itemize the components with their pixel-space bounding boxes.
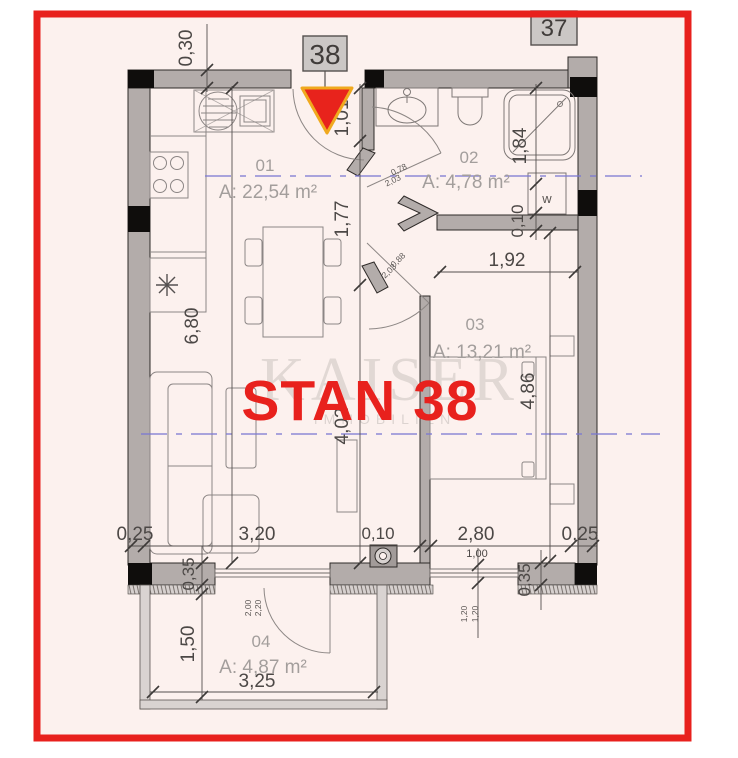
unit-number: 38 xyxy=(309,39,340,70)
dim-bedroom-width: 2,80 xyxy=(458,524,495,545)
dim-bottom-left-wall: 0,25 xyxy=(117,524,154,545)
dim-bottom-mid-wall: 0,10 xyxy=(361,524,394,543)
dim-balcony-parapet: 0,35 xyxy=(179,557,198,590)
fridge-star-icon xyxy=(156,274,178,296)
dim-bedroom-side: 4,86 xyxy=(518,373,539,410)
dim-balcony-door-a: 2,00 xyxy=(243,599,253,616)
room-04-number: 04 xyxy=(252,632,271,651)
dim-shower: 1,84 xyxy=(510,127,531,164)
room-04-area: A: 4,87 m² xyxy=(219,657,307,678)
room-02-number: 02 xyxy=(460,148,479,167)
dim-living-width: 3,20 xyxy=(239,524,276,545)
dim-bath-wall: 0,10 xyxy=(508,204,527,237)
dim-kitchen-side: 6,80 xyxy=(182,308,203,345)
room-02-area: A: 4,78 m² xyxy=(422,172,510,193)
dim-top-wall: 0,30 xyxy=(176,30,197,67)
washing-machine-label: w xyxy=(541,191,552,206)
apartment-title: STAN 38 xyxy=(241,369,478,433)
dim-bottom-right-wall: 0,25 xyxy=(562,524,599,545)
dim-axis-upper: 1,77 xyxy=(332,201,353,238)
dim-bedroom-top: 1,92 xyxy=(489,250,526,271)
adjacent-unit-number: 37 xyxy=(541,15,568,42)
floor-plan-page: KAISER IMMOBILIEN xyxy=(0,0,738,758)
dim-balcony-door-b: 2,20 xyxy=(253,599,263,616)
dim-window-pane-a: 1,20 xyxy=(459,605,469,622)
room-03-area: A: 13,21 m² xyxy=(433,342,531,363)
dim-balcony-depth: 1,50 xyxy=(178,626,199,663)
dim-window-width: 1,00 xyxy=(466,548,487,560)
dim-bedroom-parapet: 0,35 xyxy=(515,563,534,596)
dim-window-pane-b: 1,20 xyxy=(470,605,480,622)
utility-shaft xyxy=(370,545,397,567)
room-01-number: 01 xyxy=(256,156,275,175)
floor-plan: KAISER IMMOBILIEN xyxy=(0,0,738,758)
room-03-number: 03 xyxy=(466,315,485,334)
room-01-area: A: 22,54 m² xyxy=(219,182,317,203)
